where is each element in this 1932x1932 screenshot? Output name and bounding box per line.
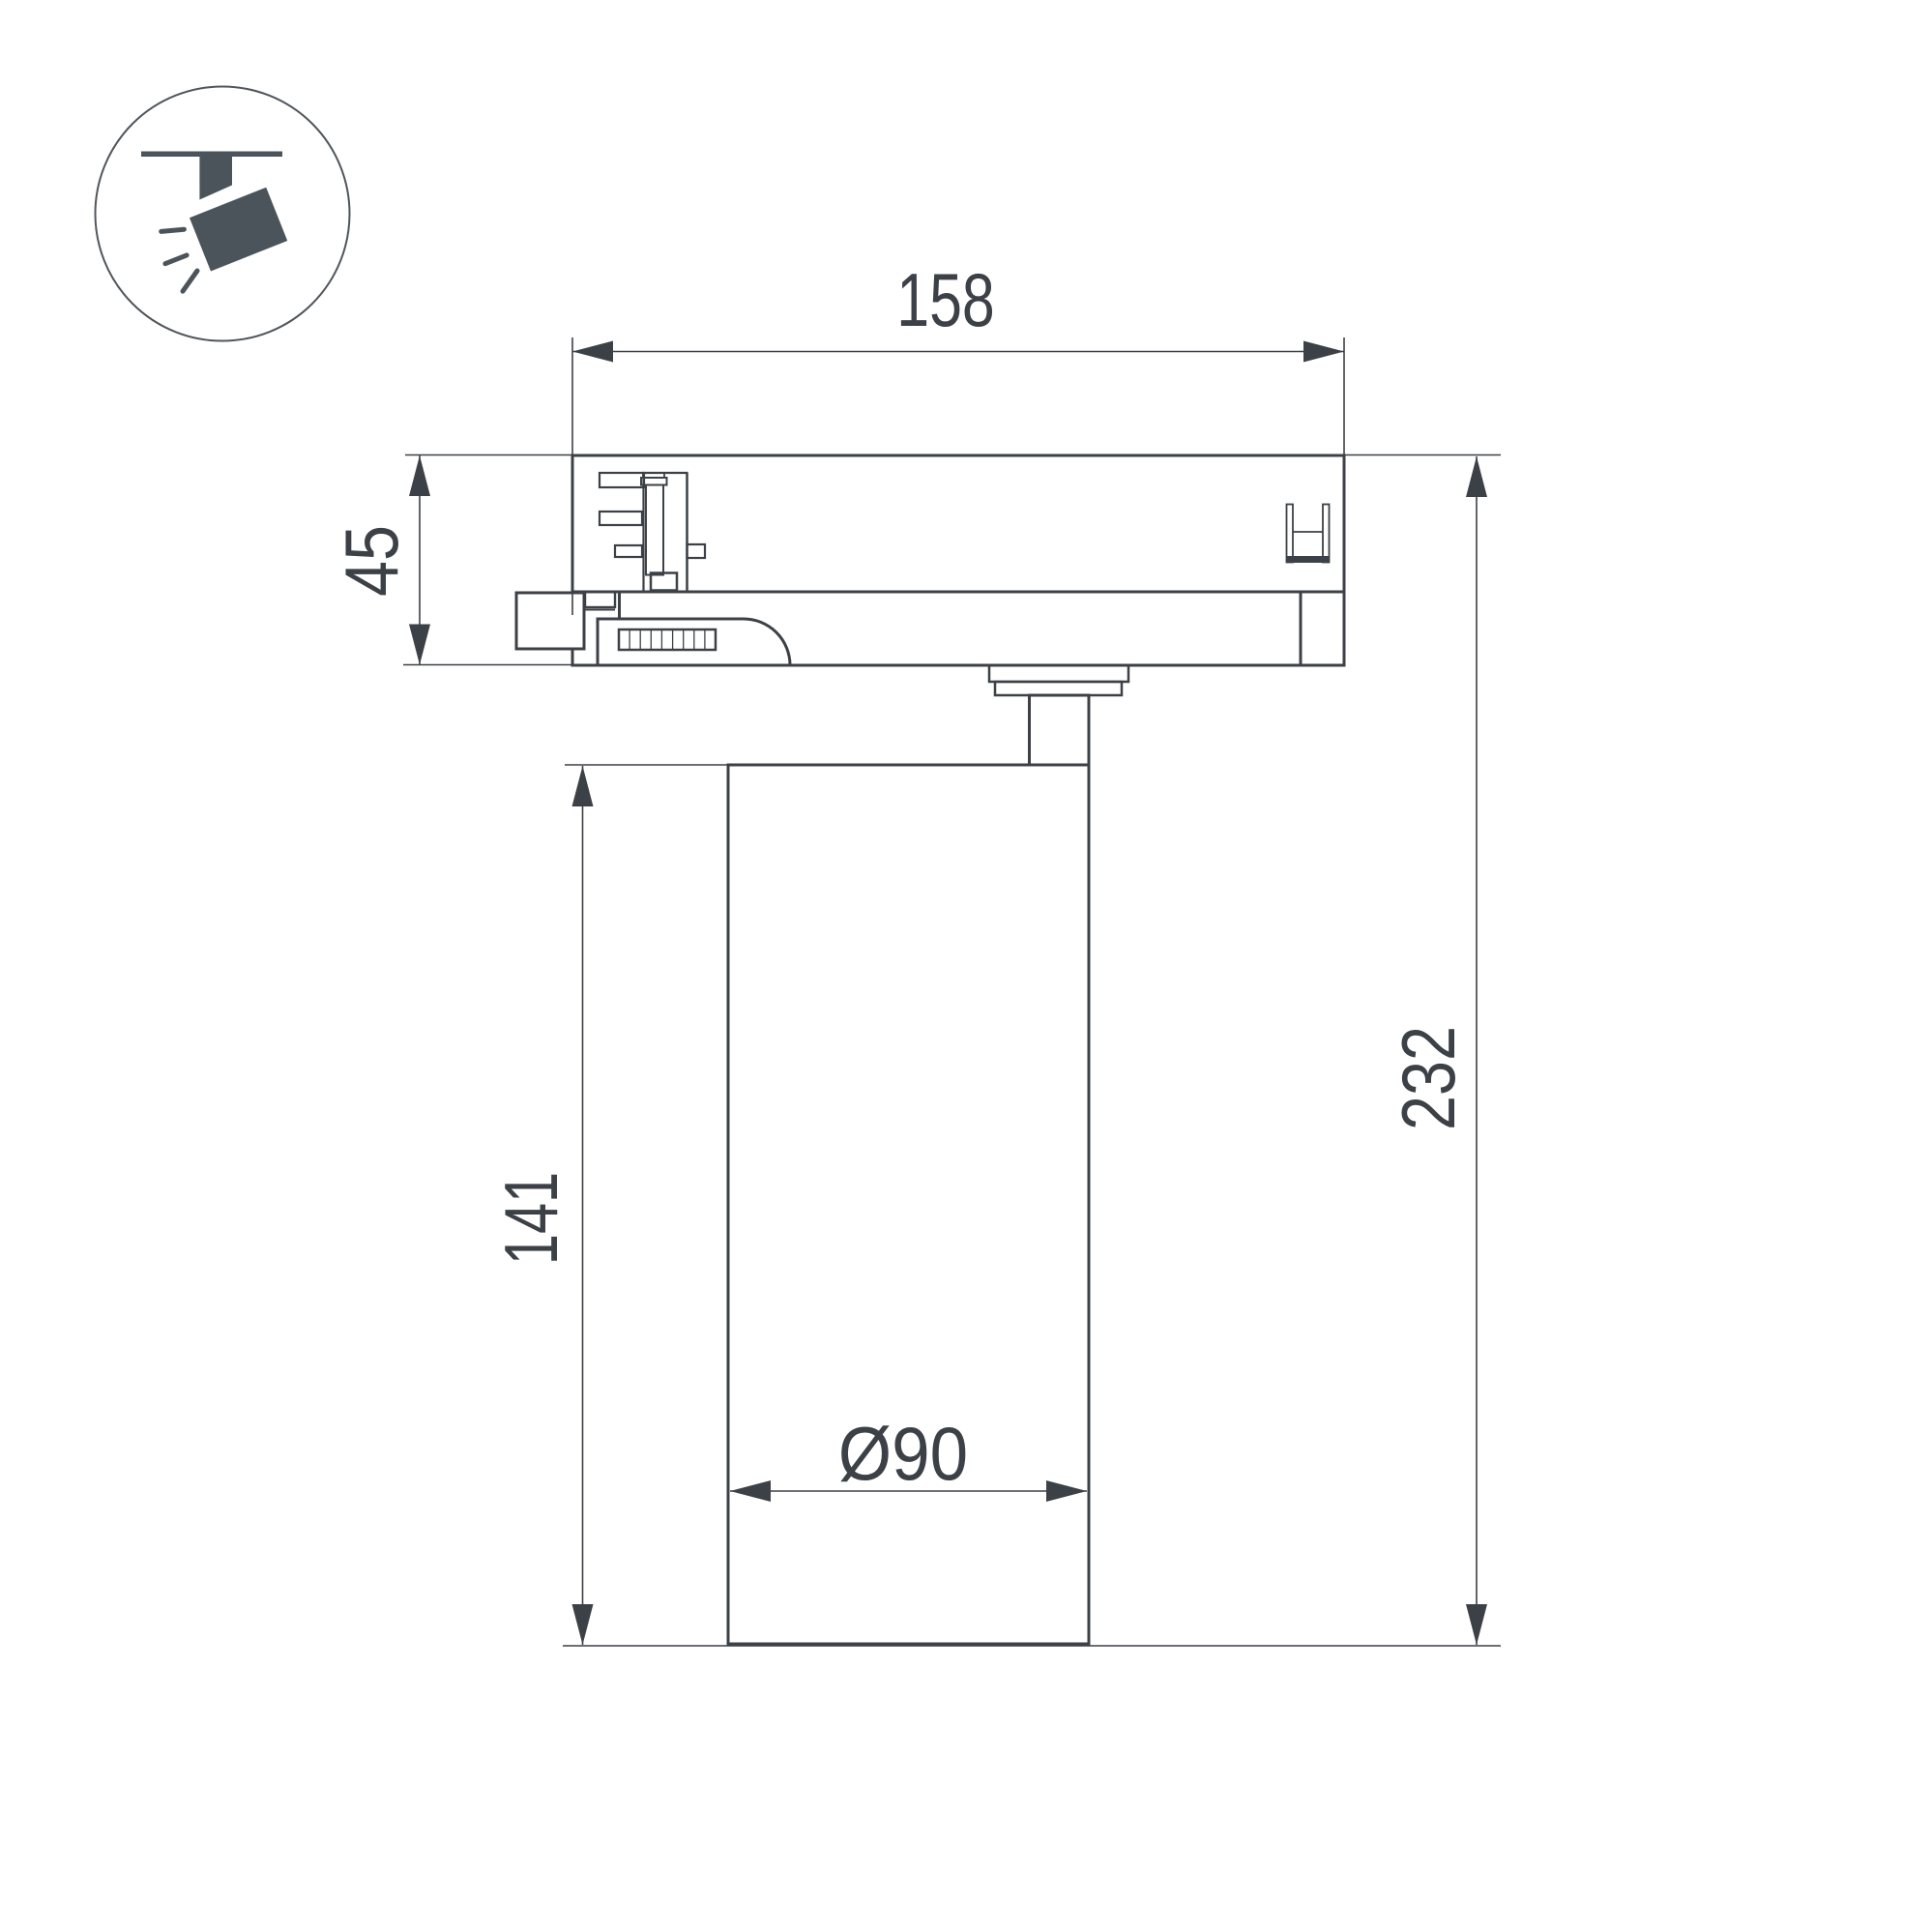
svg-text:45: 45 — [330, 525, 414, 597]
svg-text:232: 232 — [1387, 1026, 1471, 1130]
svg-text:158: 158 — [896, 258, 995, 342]
svg-text:Ø90: Ø90 — [838, 1411, 968, 1496]
svg-text:141: 141 — [489, 1172, 574, 1265]
